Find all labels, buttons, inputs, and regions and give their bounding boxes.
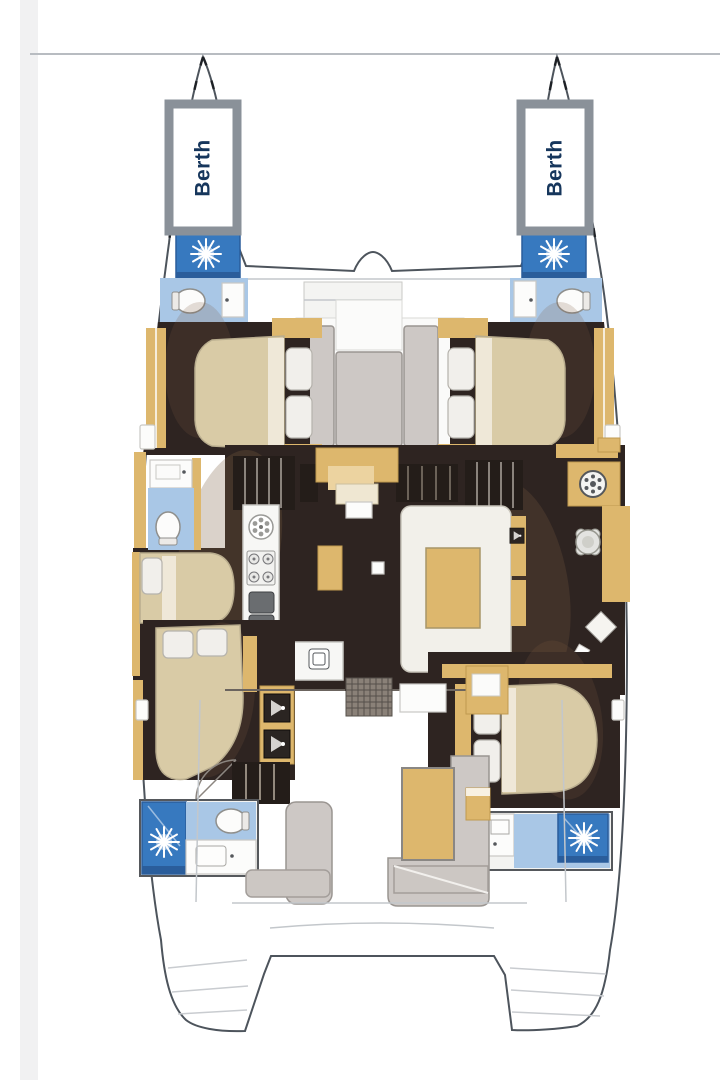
saloon-table <box>426 548 480 628</box>
floorplan-drawing: Berth Berth <box>0 0 720 1080</box>
forward-cockpit-locker <box>336 300 402 350</box>
floor-hatch <box>346 502 372 518</box>
head-door <box>514 281 536 317</box>
page-edge-strip <box>20 0 38 1080</box>
hull-porthole <box>612 700 624 720</box>
faucet <box>230 854 234 858</box>
port-forward-cabin <box>140 302 322 458</box>
toilet-icon <box>216 809 249 833</box>
side-cabinet <box>511 516 526 576</box>
starboard-forward-shower <box>522 232 586 280</box>
door-knob <box>529 298 533 302</box>
shower-edge <box>142 866 186 874</box>
swim-platform-port <box>246 870 330 897</box>
hull-porthole <box>136 700 148 720</box>
pillow <box>163 631 193 658</box>
sink-basin <box>156 465 180 479</box>
desk-chair-icon <box>576 529 600 555</box>
side-cabinet <box>511 580 526 626</box>
deck-grate <box>346 678 392 716</box>
kettle-icon <box>309 649 329 669</box>
dinette <box>401 506 526 672</box>
sink-basin <box>196 846 226 866</box>
door-knob <box>225 298 229 302</box>
port-companionway-steps <box>233 456 295 510</box>
toilet-icon <box>156 512 180 545</box>
bed-sheet <box>476 338 492 448</box>
pillow <box>448 348 474 390</box>
cockpit-side-table <box>466 788 490 820</box>
windshield-panel <box>300 464 318 502</box>
port-forward-shower <box>176 232 240 280</box>
cabinet <box>598 438 620 452</box>
double-bed <box>502 684 597 794</box>
swim-platform-starboard <box>394 866 488 893</box>
port-aft-steps <box>232 762 290 804</box>
berth-label: Berth <box>544 139 567 196</box>
washing-machine-icon <box>580 471 606 497</box>
pillow <box>197 629 227 656</box>
pillow <box>286 348 312 390</box>
faucet <box>182 470 186 474</box>
floor-hatch <box>372 562 384 574</box>
forward-seat-center <box>336 352 402 446</box>
pillow <box>448 396 474 438</box>
bed-sheet <box>268 338 284 448</box>
hull-porthole <box>140 425 155 449</box>
headboard-shelf-top <box>438 318 488 338</box>
nightstand <box>243 636 257 692</box>
desk <box>602 506 630 602</box>
pillow <box>286 396 312 438</box>
burner-plate-icon <box>249 515 273 539</box>
port-aft-cabin <box>133 617 295 804</box>
starboard-aft-bathroom <box>484 812 612 870</box>
windshield-slats <box>396 464 458 502</box>
speaker-icon <box>510 528 524 543</box>
port-hull-mid-bathroom <box>134 452 201 550</box>
starboard-forward-cabin <box>438 302 620 458</box>
berth-starboard: Berth <box>521 104 589 231</box>
berth-label: Berth <box>192 139 215 196</box>
hull-cabinet <box>134 452 146 548</box>
stove-icon <box>247 551 275 585</box>
catamaran-floorplan-page: Berth Berth <box>0 0 720 1080</box>
hull-shelf <box>132 552 140 676</box>
sink-basin <box>249 592 274 613</box>
speaker-icon <box>264 694 290 722</box>
starboard-companionway-steps <box>465 460 523 510</box>
speaker-icon <box>264 730 290 758</box>
bed-sheet <box>162 556 176 620</box>
port-aft-bathroom <box>140 800 258 876</box>
berth-port: Berth <box>169 104 237 231</box>
hull-cabinet <box>133 680 143 780</box>
starboard-cockpit-cabinet <box>466 666 508 714</box>
headboard-shelf-top <box>272 318 322 338</box>
pillow <box>142 558 162 594</box>
sink-basin <box>491 820 509 834</box>
deck-hatch <box>400 684 446 712</box>
mast-post <box>318 546 342 590</box>
faucet <box>493 842 497 846</box>
cockpit-table <box>402 768 454 860</box>
speaker-cabinet <box>260 686 294 764</box>
forward-seat-starboard <box>404 326 438 446</box>
